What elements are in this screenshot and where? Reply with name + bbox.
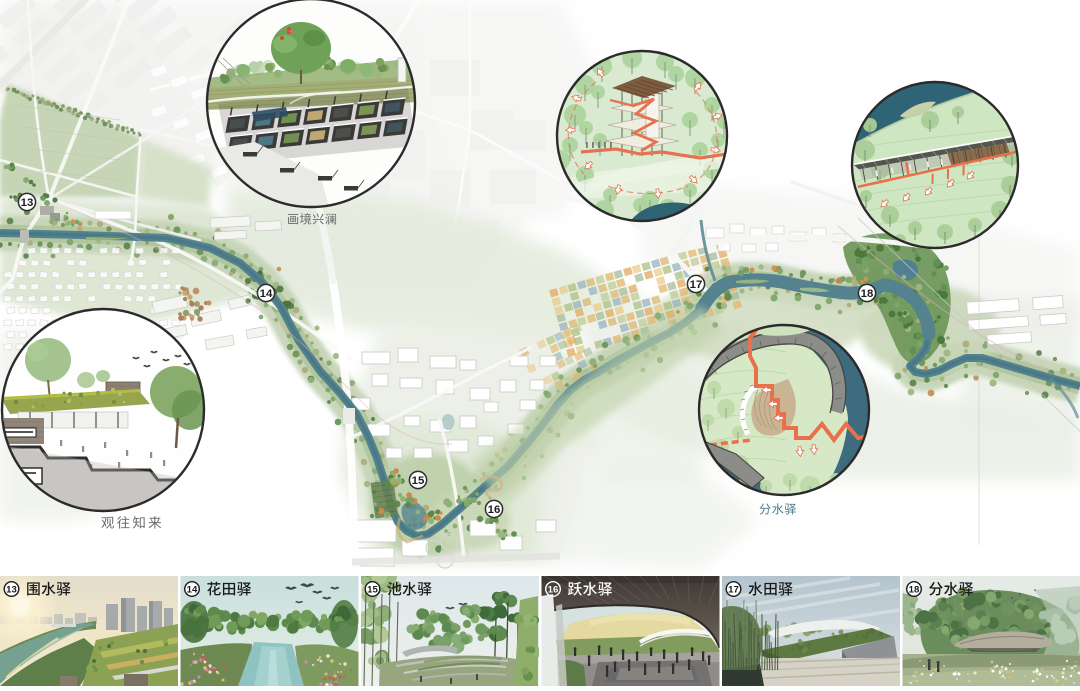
svg-text:13: 13: [6, 584, 17, 595]
svg-text:16: 16: [488, 504, 501, 516]
svg-text:13: 13: [21, 197, 34, 209]
svg-text:15: 15: [367, 584, 378, 595]
svg-text:17: 17: [690, 279, 703, 291]
svg-text:17: 17: [728, 584, 739, 595]
svg-text:18: 18: [909, 584, 920, 595]
svg-text:16: 16: [548, 584, 559, 595]
svg-text:14: 14: [187, 584, 198, 595]
svg-text:18: 18: [861, 288, 874, 300]
svg-text:15: 15: [412, 475, 425, 487]
svg-text:14: 14: [260, 288, 273, 300]
